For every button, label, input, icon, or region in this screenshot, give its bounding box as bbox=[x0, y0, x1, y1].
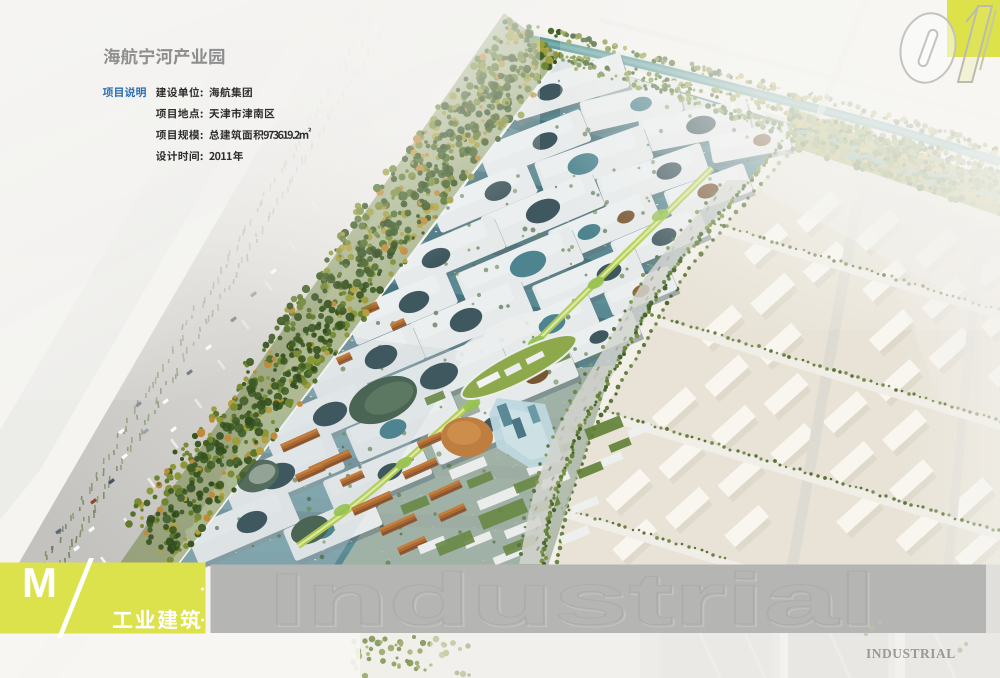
svg-text:Industrial: Industrial bbox=[268, 559, 876, 640]
svg-text:M: M bbox=[22, 559, 57, 606]
svg-text:INDUSTRIAL: INDUSTRIAL bbox=[866, 646, 956, 661]
